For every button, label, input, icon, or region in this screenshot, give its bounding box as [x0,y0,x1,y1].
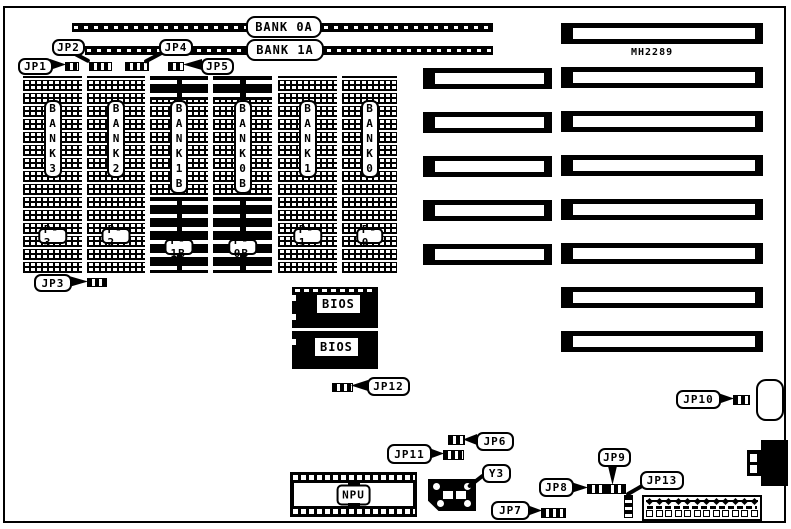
jp5-jumper [168,62,184,71]
p0b-label: P-0B [228,239,258,255]
expansion-slot [561,67,763,88]
connector-slot [750,465,757,473]
memory-column-bank2: BANK2 P-2 [87,76,145,273]
keyboard-connector [747,440,788,486]
jp6-jumper [448,435,465,445]
expansion-slot [423,156,552,177]
bios-pin-row [295,289,375,292]
jp1-label: JP1 [18,58,53,75]
p0-label: P-0 [356,228,384,244]
bank0b-label: BANK0B [234,100,252,194]
jp7-label: JP7 [491,501,530,520]
jp2-jumper [89,62,112,71]
jp4-label: JP4 [159,39,193,56]
expansion-slot [561,287,763,308]
memory-column-bank0: BANK0 P-0 [342,76,397,273]
jp6-label: JP6 [476,432,514,451]
sq-cell [646,510,653,517]
bios-notch [292,314,296,320]
expansion-slot [561,243,763,264]
plus-cell [665,498,672,505]
empty-socket-pattern [150,76,208,100]
jp12-label: JP12 [367,377,410,396]
jp2-label: JP2 [52,39,85,56]
memory-column-bank1b: BANK1B P-1B [150,76,208,273]
plus-cell [713,498,720,505]
jp12-jumper [332,383,353,392]
bios2-label: BIOS [315,338,358,356]
jp8-jumper [587,484,606,494]
sq-cell [694,510,701,517]
p2-label: P-2 [102,228,131,244]
bank1b-label: BANK1B [170,100,188,194]
jp9-pointer [608,466,617,485]
jp1-jumper [65,62,79,71]
expansion-slot [561,331,763,352]
expansion-slot [423,68,552,89]
pad-bar [443,491,453,499]
expansion-slot [423,244,552,265]
expansion-slots-right [561,23,763,352]
empty-socket-pattern [213,76,272,100]
pad-dot [437,500,444,507]
p1-label: P-1 [293,228,323,244]
memory-column-bank0b: BANK0B P-0B [213,76,272,273]
plus-cell [684,498,691,505]
pad-dot [433,483,440,490]
npu-socket: NPU [290,472,417,517]
pad-dot [464,500,471,507]
npu-pin-row [292,507,415,516]
jp9-label: JP9 [598,448,631,467]
bios-chip-1: BIOS [292,287,378,328]
power-connector [642,495,762,521]
bank2-label: BANK2 [107,100,125,178]
connector-pin-row [646,497,758,506]
jp13-jumper [624,495,633,518]
jp9-jumper [606,484,626,494]
expansion-slot [423,112,552,133]
jp8-label: JP8 [539,478,574,497]
memory-column-bank3: BANK3 P-3 [23,76,82,273]
plus-cell [655,498,662,505]
bank3-label: BANK3 [44,100,62,178]
battery-outline [756,379,784,421]
jp5-pointer [183,59,202,70]
plus-cell [722,498,729,505]
expansion-slot [561,111,763,132]
sq-cell [665,510,672,517]
jp11-jumper [443,450,464,460]
p1b-label: P-1B [165,239,194,255]
plus-cell [646,498,653,505]
pad-bar [456,491,466,499]
plus-cell [675,498,682,505]
plus-cell [751,498,758,505]
p3-label: P-3 [38,228,68,244]
jp3-label: JP3 [34,274,72,292]
bios-notch [292,339,296,345]
expansion-slot [561,155,763,176]
bank1-label: BANK1 [299,100,317,178]
jp6-pointer [463,434,477,445]
expansion-slot [561,23,763,44]
sq-cell [751,510,758,517]
sq-cell [713,510,720,517]
motherboard-outline: BANK 0A BANK 1A MH2289 BANK3 P-3 BANK2 P… [3,6,786,523]
jp10-jumper [733,395,750,405]
plus-cell [732,498,739,505]
sq-cell [656,510,663,517]
keyboard-connector-body [761,440,788,486]
plus-cell [703,498,710,505]
bank0a-label: BANK 0A [246,16,322,38]
memory-column-bank1: BANK1 P-1 [278,76,337,273]
connector-slot [750,454,757,462]
sq-cell [722,510,729,517]
sq-cell [741,510,748,517]
jp12-pointer [351,380,368,391]
y3-label: Y3 [482,464,511,483]
jp7-jumper [541,508,566,518]
npu-label: NPU [336,484,371,505]
jp3-jumper [87,278,107,287]
connector-dash-row [647,506,757,509]
expansion-slot [423,200,552,221]
bank0-label: BANK0 [361,100,379,178]
sq-cell [732,510,739,517]
connector-pad-row [644,510,760,517]
jp11-label: JP11 [387,444,432,464]
npu-socket-cavity: NPU [294,483,413,506]
sq-cell [684,510,691,517]
bios1-label: BIOS [317,295,360,313]
sq-cell [675,510,682,517]
sq-cell [703,510,710,517]
expansion-slot [561,199,763,220]
jp10-label: JP10 [676,390,721,409]
plus-cell [741,498,748,505]
jp13-label: JP13 [640,471,684,490]
bios-notch [292,295,296,301]
jp5-label: JP5 [201,58,234,75]
plus-cell [694,498,701,505]
expansion-slots-left [423,68,552,265]
bank1a-label: BANK 1A [246,39,324,61]
bios-chip-2: BIOS [292,331,378,369]
